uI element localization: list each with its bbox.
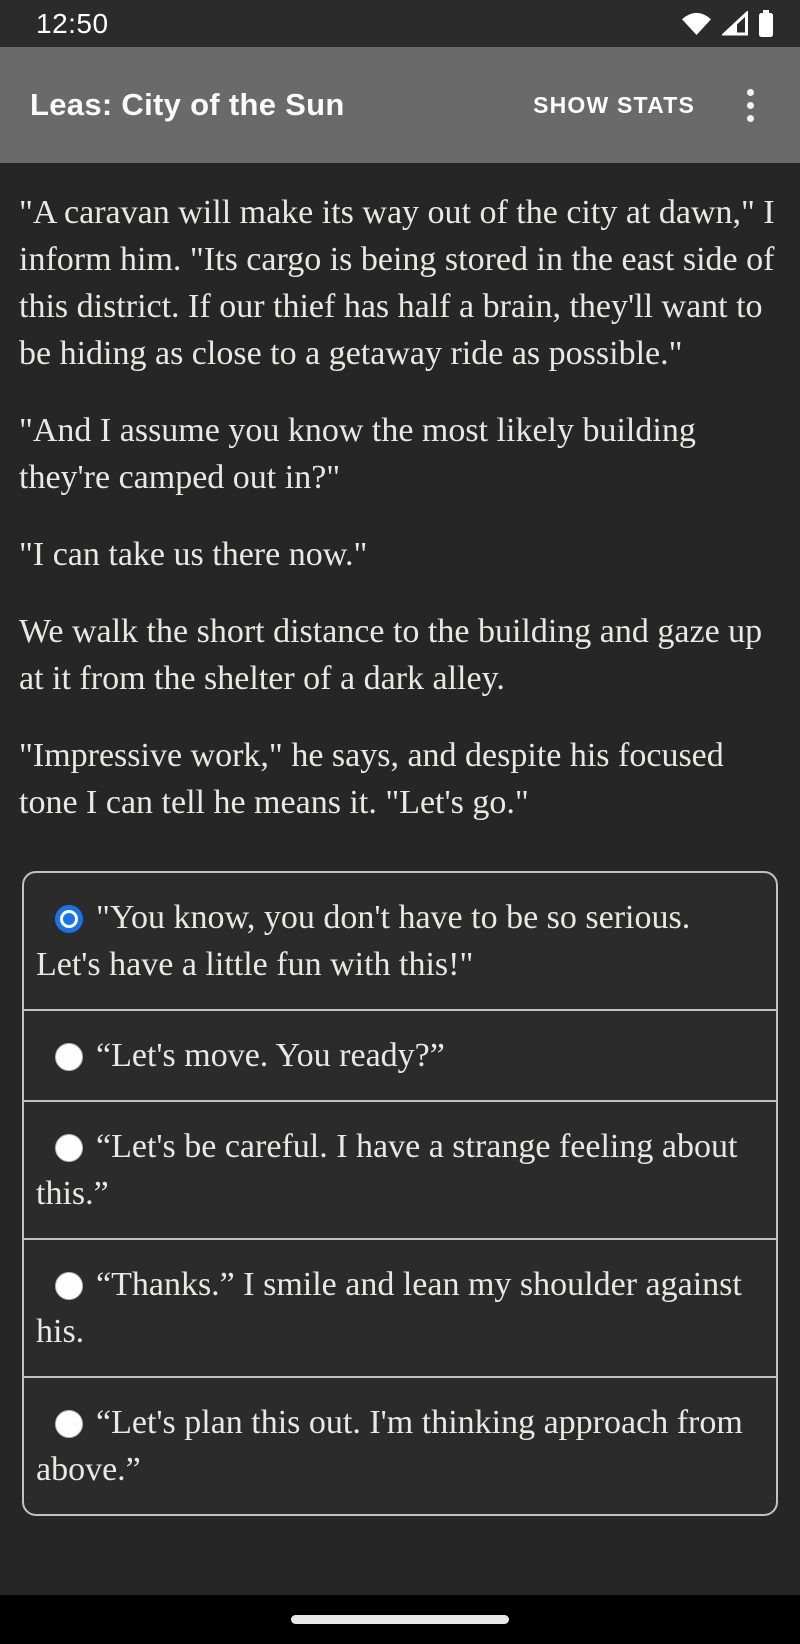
home-indicator[interactable] bbox=[291, 1615, 509, 1624]
choice-option[interactable]: "You know, you don't have to be so serio… bbox=[24, 873, 776, 1011]
gesture-nav-bar bbox=[0, 1595, 800, 1644]
radio-button-icon[interactable] bbox=[55, 1410, 83, 1438]
radio-button-icon[interactable] bbox=[55, 1134, 83, 1162]
choice-label: “Let's be careful. I have a strange feel… bbox=[36, 1128, 737, 1212]
wifi-icon bbox=[681, 11, 712, 36]
page-title: Leas: City of the Sun bbox=[30, 87, 533, 123]
choice-label: “Let's plan this out. I'm thinking appro… bbox=[36, 1404, 743, 1488]
status-time: 12:50 bbox=[36, 8, 109, 40]
radio-button-icon[interactable] bbox=[55, 1272, 83, 1300]
story-paragraph: We walk the short distance to the buildi… bbox=[19, 608, 780, 702]
status-icons bbox=[681, 10, 774, 37]
show-stats-button[interactable]: SHOW STATS bbox=[533, 82, 695, 129]
status-bar: 12:50 bbox=[0, 0, 800, 47]
story-paragraph: "I can take us there now." bbox=[19, 531, 780, 578]
radio-button-icon[interactable] bbox=[55, 905, 83, 933]
story-paragraph: "Impressive work," he says, and despite … bbox=[19, 732, 780, 826]
battery-icon bbox=[758, 10, 774, 37]
cellular-signal-icon bbox=[722, 11, 748, 36]
kebab-dot bbox=[747, 89, 754, 96]
overflow-menu-button[interactable] bbox=[743, 83, 758, 128]
choice-label: “Let's move. You ready?” bbox=[96, 1037, 445, 1074]
story-paragraph: "And I assume you know the most likely b… bbox=[19, 407, 780, 501]
kebab-dot bbox=[747, 115, 754, 122]
app-bar: Leas: City of the Sun SHOW STATS bbox=[0, 47, 800, 163]
kebab-dot bbox=[747, 102, 754, 109]
choice-option[interactable]: “Let's plan this out. I'm thinking appro… bbox=[24, 1378, 776, 1514]
story-content: "A caravan will make its way out of the … bbox=[0, 163, 800, 1595]
radio-button-icon[interactable] bbox=[55, 1043, 83, 1071]
choice-option[interactable]: “Let's move. You ready?” bbox=[24, 1011, 776, 1102]
choice-option[interactable]: “Let's be careful. I have a strange feel… bbox=[24, 1102, 776, 1240]
app-screen: 12:50 Leas: City of the S bbox=[0, 0, 800, 1644]
choice-label: "You know, you don't have to be so serio… bbox=[36, 899, 690, 983]
choice-list: "You know, you don't have to be so serio… bbox=[22, 871, 778, 1516]
story-paragraph: "A caravan will make its way out of the … bbox=[19, 189, 780, 377]
choice-option[interactable]: “Thanks.” I smile and lean my shoulder a… bbox=[24, 1240, 776, 1378]
choice-label: “Thanks.” I smile and lean my shoulder a… bbox=[36, 1266, 742, 1350]
